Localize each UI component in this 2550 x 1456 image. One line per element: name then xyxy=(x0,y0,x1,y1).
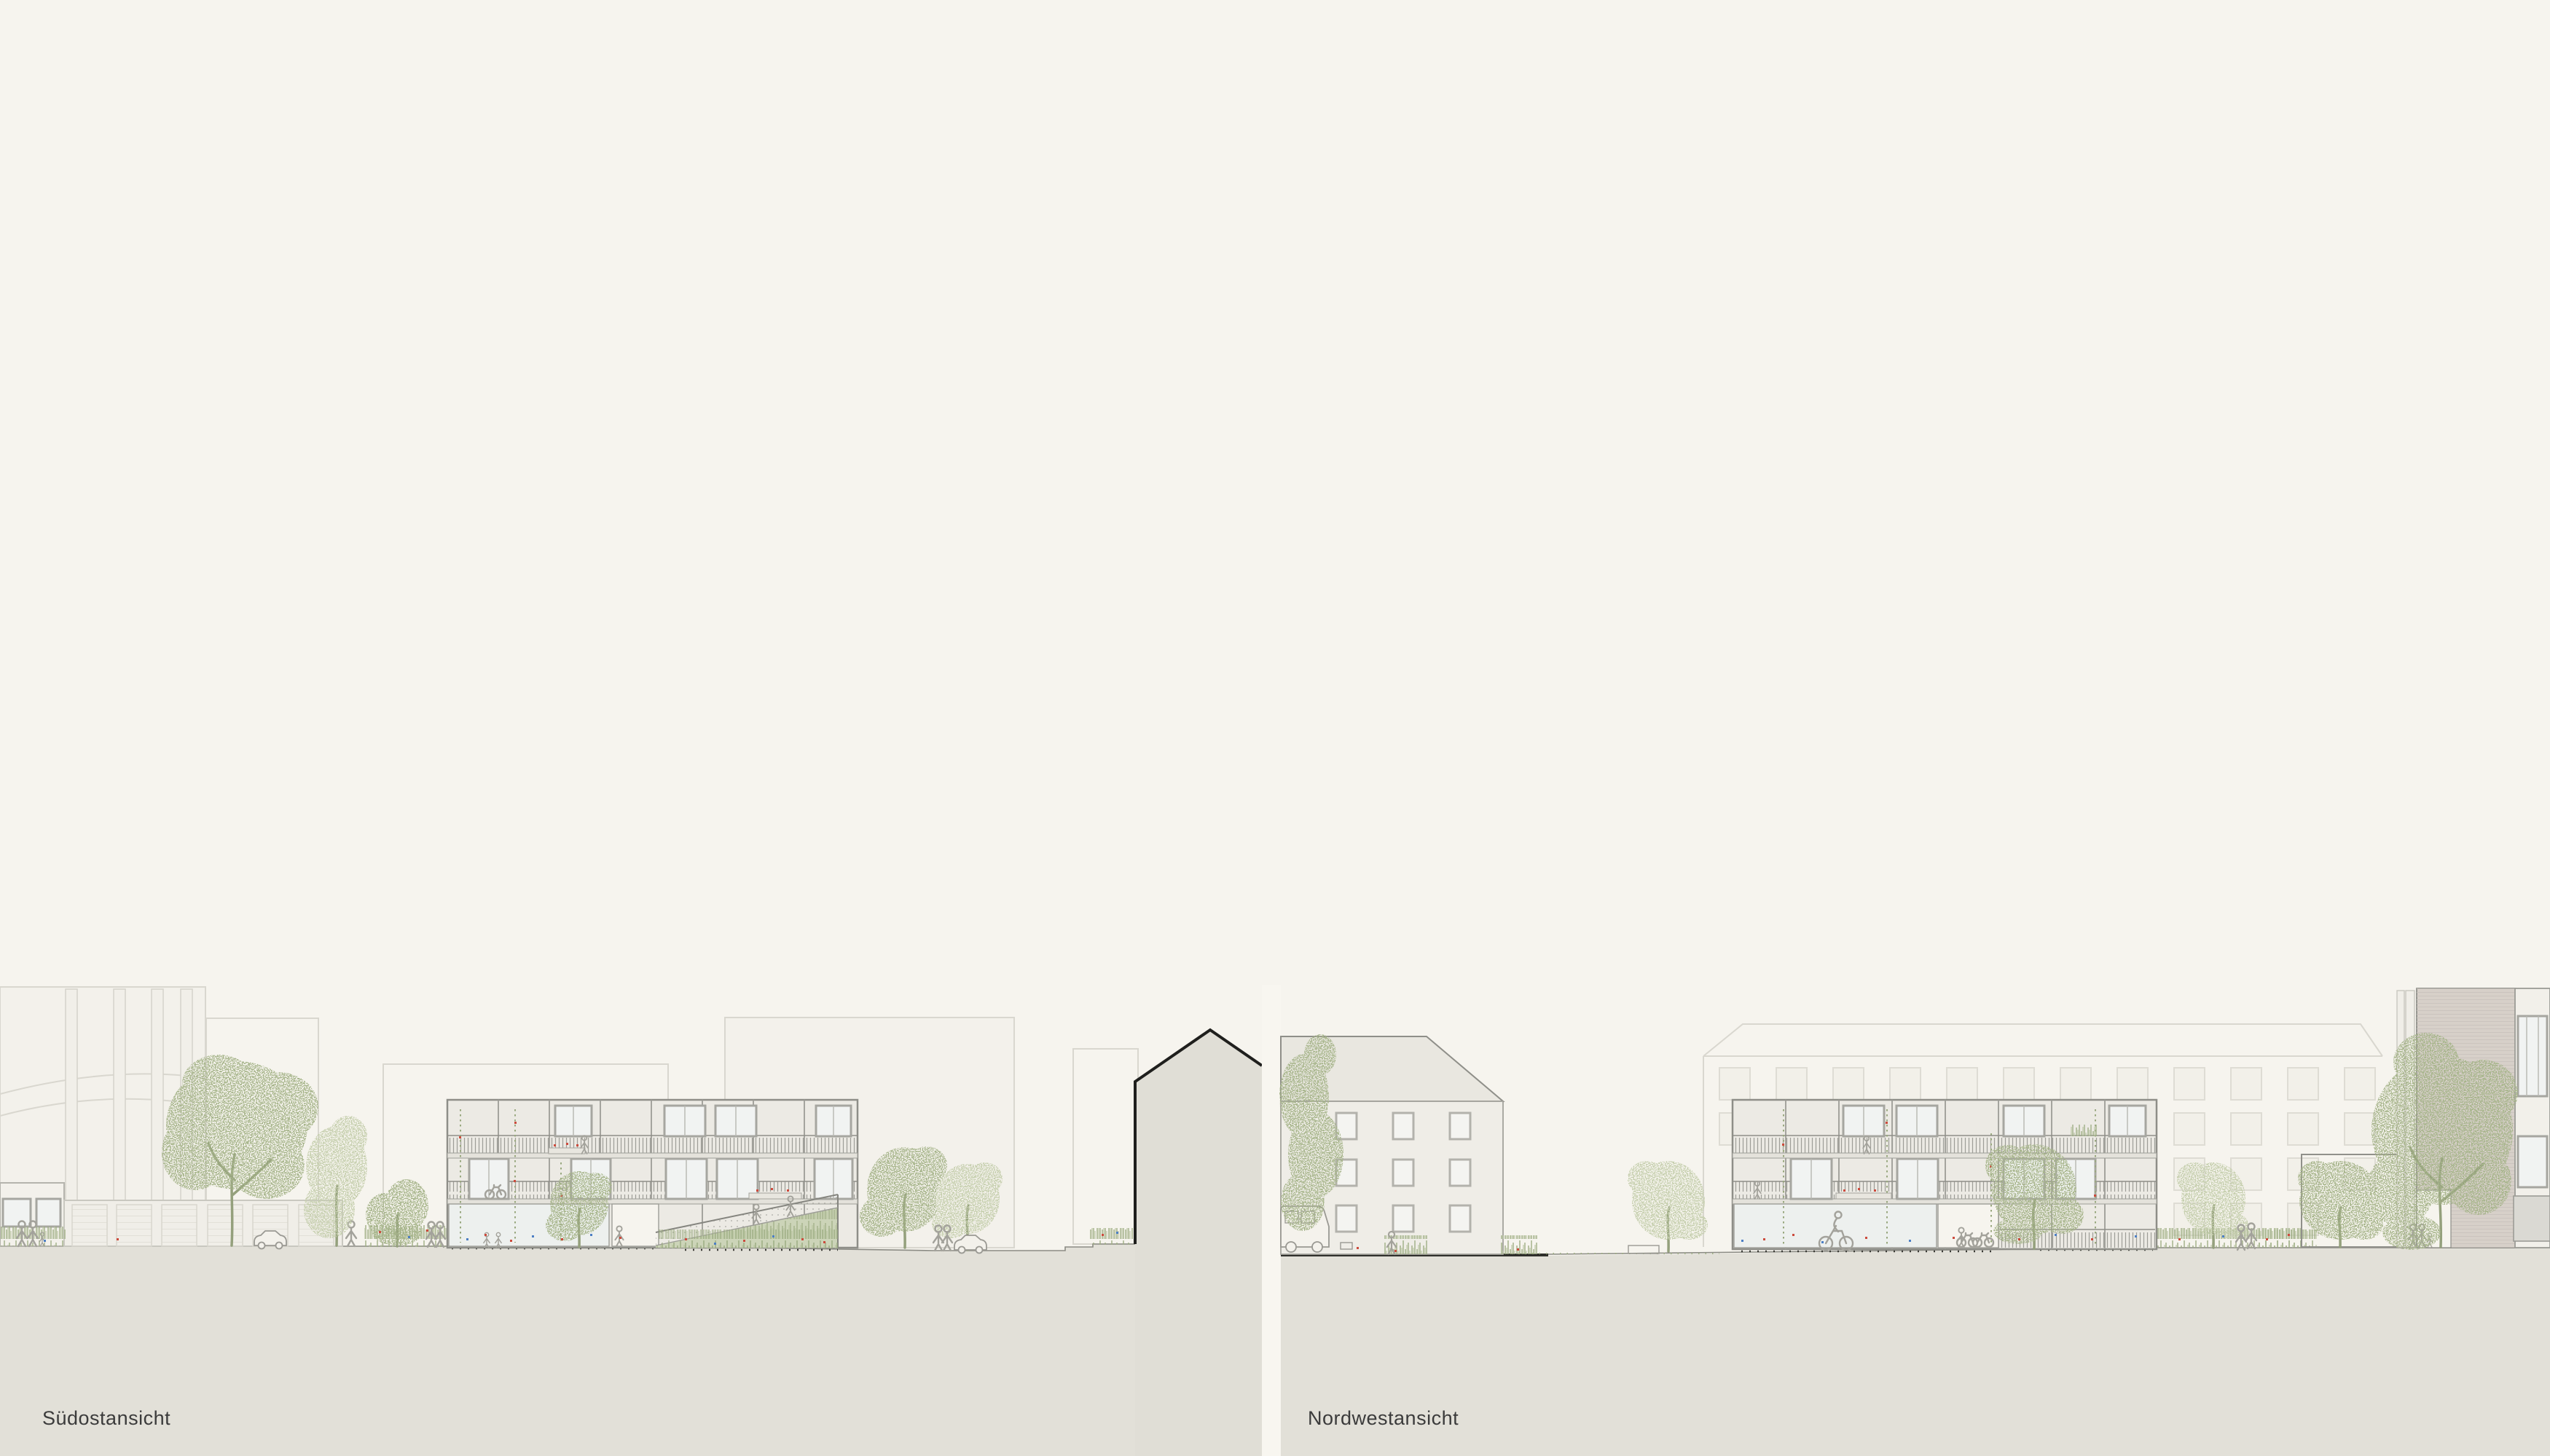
label-nordwestansicht: Nordwestansicht xyxy=(1308,1407,1459,1430)
apartment-building-right xyxy=(1733,1100,2157,1249)
planter-box xyxy=(1836,1193,1891,1199)
white-edge-building xyxy=(2514,988,2550,1248)
garage-building xyxy=(64,1200,342,1249)
balcony-railing xyxy=(447,1136,858,1154)
elevation-sheet: Südostansicht Nordwestansicht xyxy=(0,0,2550,1456)
planter-box xyxy=(549,1148,585,1154)
label-suedostansicht: Südostansicht xyxy=(42,1407,170,1430)
ground-right xyxy=(1281,1248,2550,1456)
house-windows xyxy=(1336,1113,1470,1232)
balcony-railing xyxy=(1733,1136,2157,1154)
ground-left xyxy=(0,1244,1262,1456)
panel-divider xyxy=(1262,985,1281,1456)
balcony-plants xyxy=(2071,1125,2097,1136)
elevation-drawing xyxy=(0,0,2550,1456)
